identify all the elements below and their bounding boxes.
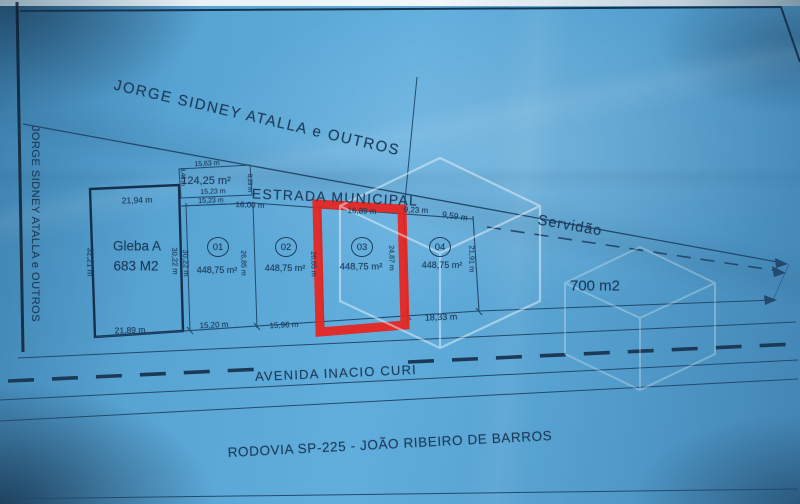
lot-02-top-dimension: 16,00 m — [235, 200, 264, 210]
lot-02-side-dimension: 26,65 m — [309, 251, 316, 276]
small-parcel-top-dimension: 15,63 m — [194, 160, 220, 168]
gleba-left-dimension: 32,21 m — [86, 248, 95, 277]
lot-01-number: 01 — [207, 237, 229, 257]
small-parcel-bottom-dimension-1: 15,23 m — [200, 188, 226, 196]
avenue-centerline-left — [8, 369, 262, 381]
neighbor-left-label: JORGE SIDNEY ATALLA e OUTROS — [29, 126, 41, 322]
lot-04-bottom-dimension: 18,33 m — [425, 311, 458, 322]
lot-divider-2 — [253, 204, 257, 328]
south-line-arrowhead — [764, 295, 777, 305]
gleba-bottom-dimension: 21,89 m — [114, 324, 145, 335]
lot-02-area: 448,75 m² — [265, 263, 306, 273]
gleba-right-dimension-2: 30,22 m — [181, 249, 191, 276]
avenue-centerline-right — [408, 344, 794, 362]
cube-watermark-secondary — [565, 247, 715, 390]
lot-04-area: 448,75 m² — [422, 260, 463, 270]
lot-02-bottom-dimension: 15,96 m — [269, 320, 298, 331]
servidao-dashed-line — [487, 227, 779, 271]
lot-02-number: 02 — [275, 237, 297, 257]
lot-01-area: 448,75 m² — [197, 265, 238, 275]
lot-04-number: 04 — [429, 237, 451, 257]
lot-03-number: 03 — [351, 237, 373, 257]
border-left-line — [17, 2, 23, 352]
border-top-line — [20, 7, 800, 62]
lot-04-top-dimension: 9,23 m — [404, 205, 429, 215]
lot-01-side-dimension: 26,85 m — [239, 250, 246, 275]
highway-north-line — [0, 379, 798, 421]
lot-03-side-dimension: 24,87 m — [387, 245, 394, 270]
lot-03-area: 448,75 m² — [340, 262, 383, 273]
small-parcel-right-dimension: 8,29 m — [246, 174, 252, 192]
small-parcel-area: 124,25 m² — [181, 175, 231, 187]
gleba-top-dimension: 21,94 m — [121, 194, 152, 205]
small-parcel-left-dimension: 8,46 m — [179, 168, 185, 186]
servidao-area-label: 700 m2 — [570, 278, 620, 295]
site-plan-photo: JORGE SIDNEY ATALLA e OUTROS JORGE SIDNE… — [0, 0, 800, 504]
lot-01-bottom-dimension: 15,20 m — [199, 320, 228, 331]
gleba-area: 683 M2 — [113, 259, 158, 274]
small-parcel-bottom-dimension-2: 15,23 m — [198, 197, 224, 205]
gleba-right-dimension: 30,22 m — [170, 247, 180, 274]
boundary-arrowhead — [775, 258, 788, 268]
survey-plan: JORGE SIDNEY ATALLA e OUTROS JORGE SIDNE… — [0, 0, 800, 504]
gleba-name: Gleba A — [113, 239, 161, 254]
highway-south-line — [0, 489, 798, 499]
lot-03-top-dimension: 16,89 m — [347, 206, 376, 216]
lot-04-side-dimension: 21,91 m — [468, 245, 477, 272]
